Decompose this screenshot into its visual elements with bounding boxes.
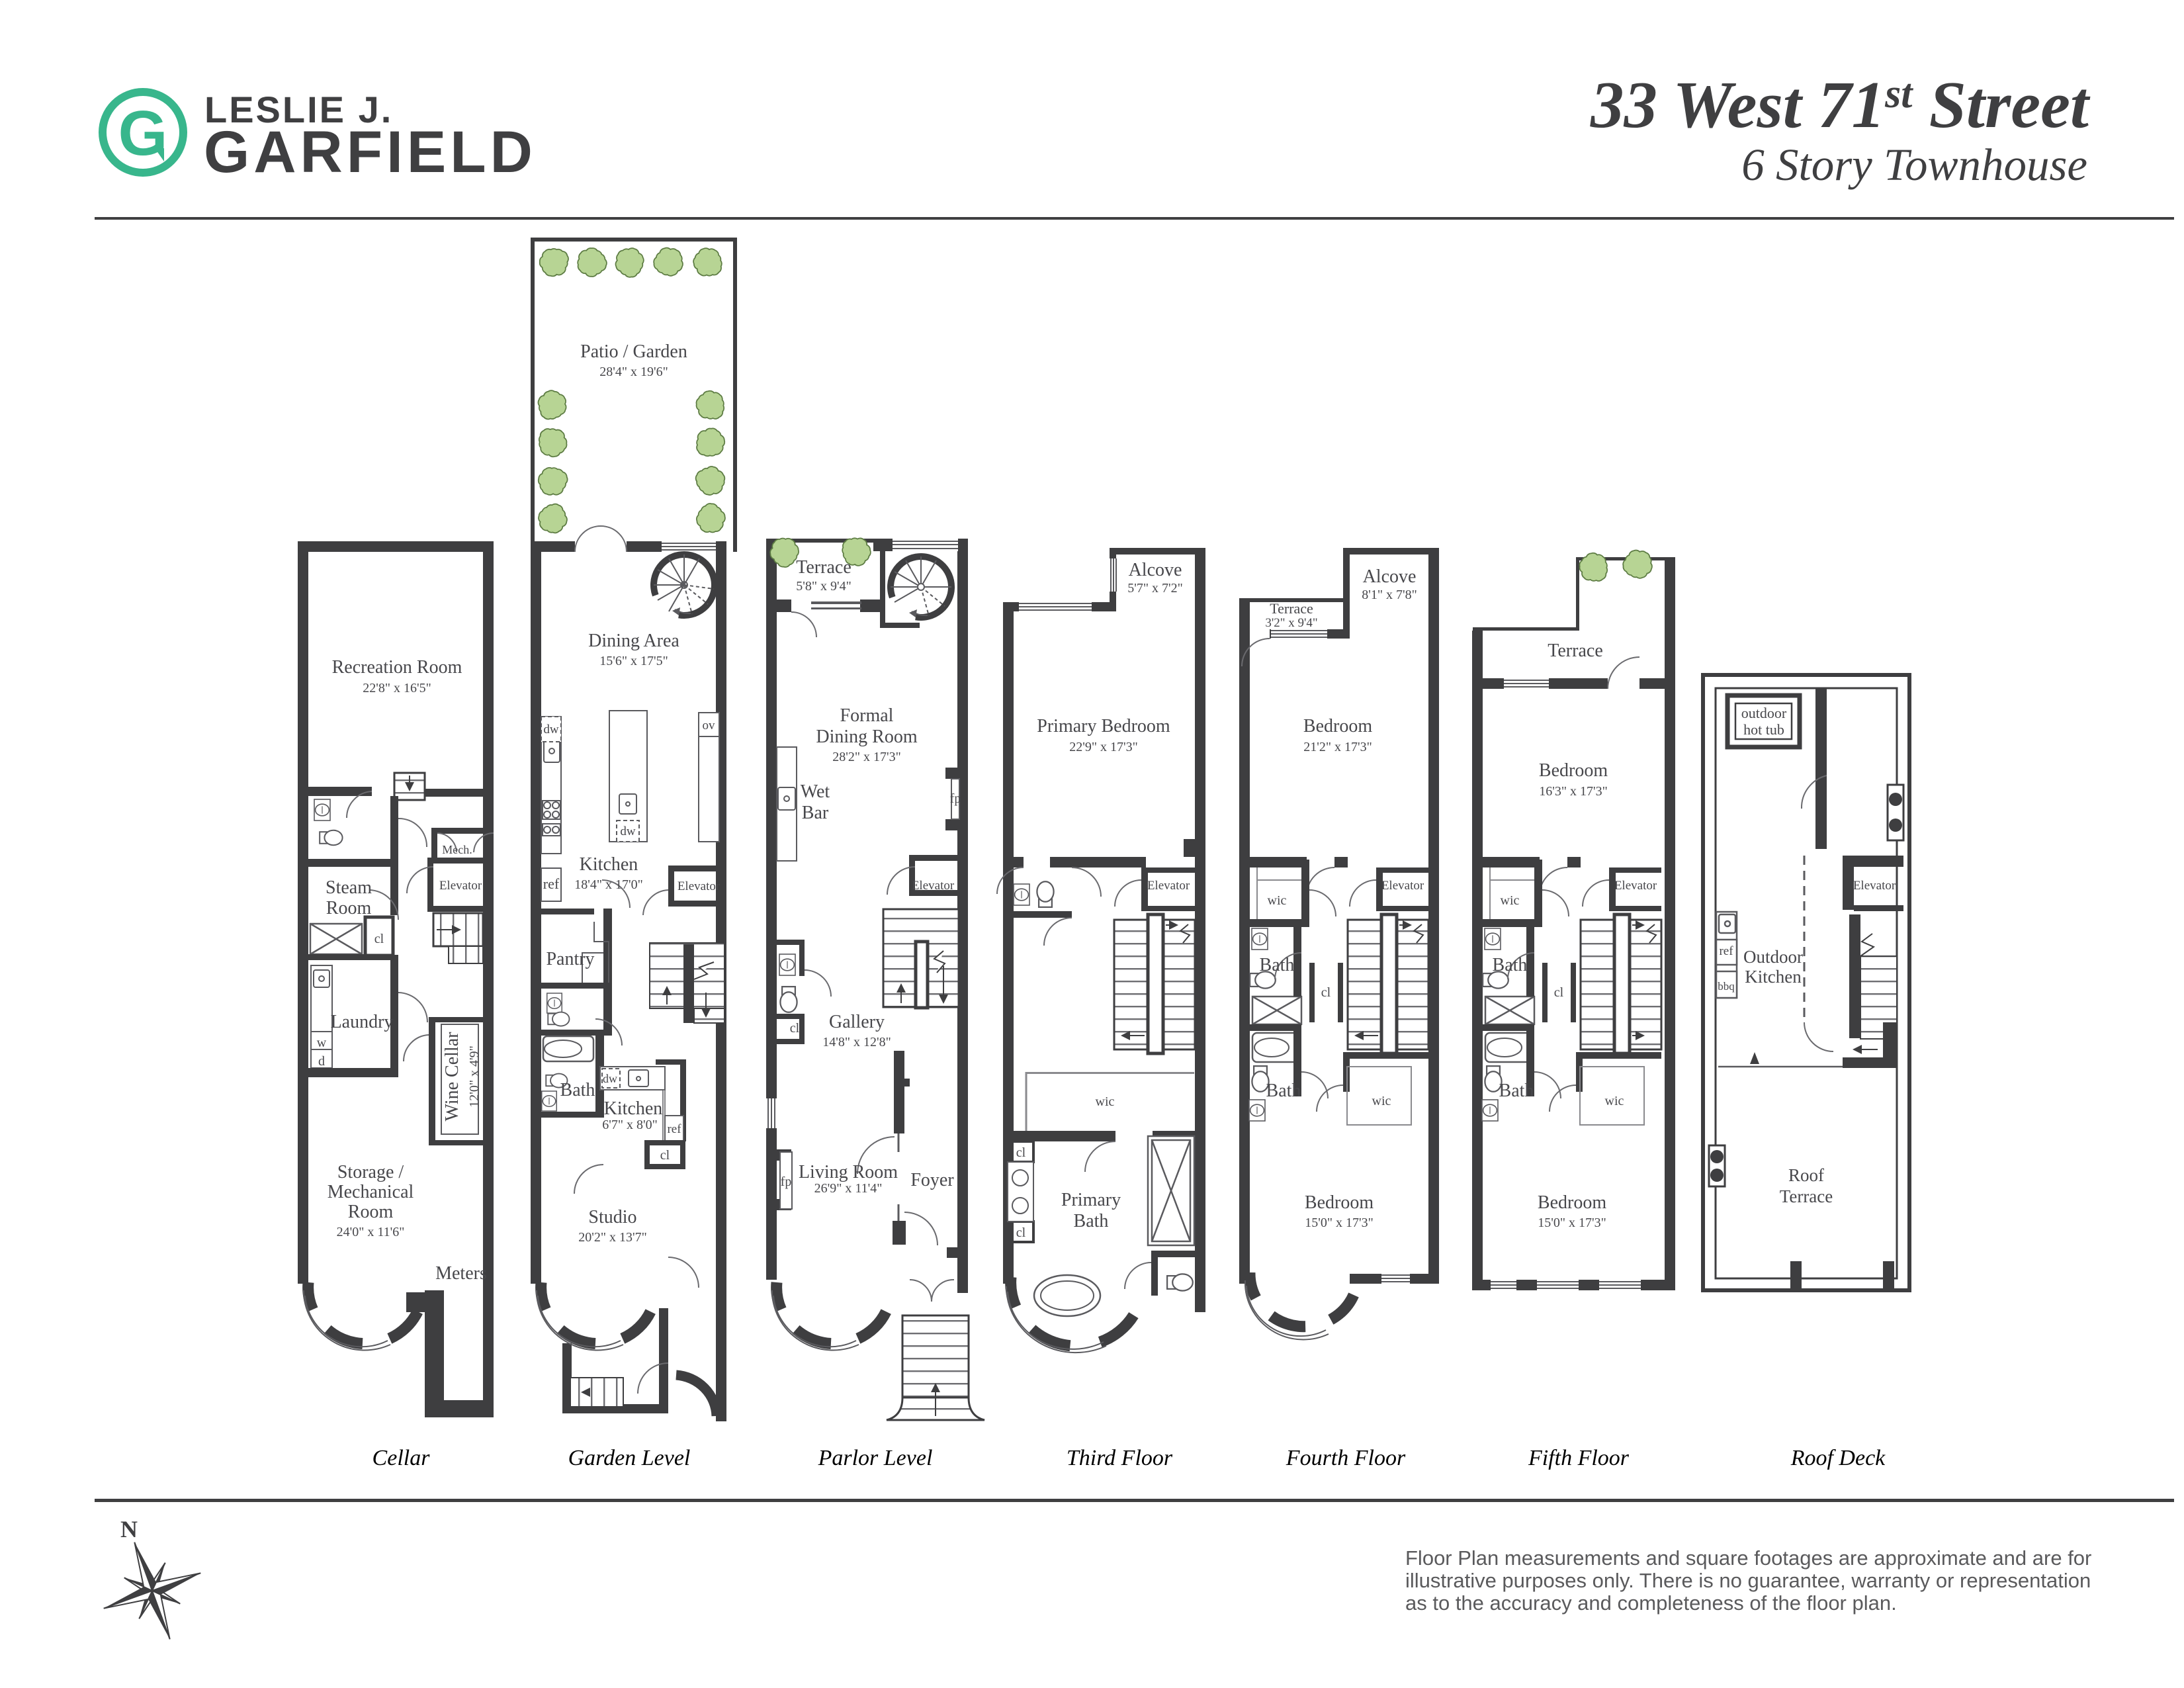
svg-text:ref: ref bbox=[1719, 944, 1733, 958]
svg-text:24'0" x 11'6": 24'0" x 11'6" bbox=[337, 1225, 405, 1239]
svg-text:Room: Room bbox=[326, 898, 372, 918]
svg-text:GARFIELD: GARFIELD bbox=[204, 118, 537, 185]
svg-text:Kitchen: Kitchen bbox=[604, 1098, 663, 1119]
svg-text:Meters: Meters bbox=[435, 1263, 487, 1284]
svg-text:12'0" x 4'9": 12'0" x 4'9" bbox=[467, 1045, 482, 1108]
svg-text:cl: cl bbox=[790, 1021, 800, 1036]
svg-text:3'2" x 9'4": 3'2" x 9'4" bbox=[1265, 616, 1317, 630]
svg-text:16'3" x 17'3": 16'3" x 17'3" bbox=[1539, 784, 1608, 799]
svg-text:Elevator: Elevator bbox=[1381, 879, 1424, 893]
svg-text:ref: ref bbox=[667, 1122, 681, 1136]
svg-text:22'8" x 16'5": 22'8" x 16'5" bbox=[363, 681, 431, 695]
svg-text:Bath: Bath bbox=[1493, 955, 1528, 975]
svg-text:Cellar: Cellar bbox=[372, 1446, 431, 1470]
svg-text:illustrative purposes only. Th: illustrative purposes only. There is no … bbox=[1405, 1569, 2091, 1592]
svg-text:wic: wic bbox=[1096, 1094, 1115, 1109]
svg-text:5'8" x 9'4": 5'8" x 9'4" bbox=[796, 579, 852, 594]
svg-text:15'6" x 17'5": 15'6" x 17'5" bbox=[599, 654, 668, 668]
svg-text:22'9" x 17'3": 22'9" x 17'3" bbox=[1069, 740, 1138, 754]
svg-text:as to the accuracy and complet: as to the accuracy and completeness of t… bbox=[1405, 1591, 1897, 1615]
svg-text:Terrace: Terrace bbox=[796, 557, 852, 578]
svg-text:ref: ref bbox=[543, 875, 560, 892]
svg-text:dw: dw bbox=[603, 1072, 617, 1085]
svg-text:cl: cl bbox=[1016, 1145, 1026, 1160]
svg-text:Terrace: Terrace bbox=[1780, 1186, 1833, 1206]
svg-text:Primary: Primary bbox=[1061, 1190, 1121, 1210]
svg-text:fp: fp bbox=[781, 1175, 792, 1189]
svg-text:N: N bbox=[120, 1516, 138, 1542]
svg-text:G: G bbox=[118, 98, 168, 169]
svg-text:Parlor Level: Parlor Level bbox=[818, 1446, 933, 1470]
svg-text:Elevator: Elevator bbox=[1147, 879, 1190, 893]
svg-text:Mechanical: Mechanical bbox=[328, 1182, 414, 1202]
svg-text:Recreation Room: Recreation Room bbox=[332, 657, 462, 678]
svg-text:26'9" x 11'4": 26'9" x 11'4" bbox=[814, 1181, 883, 1196]
svg-text:15'0" x 17'3": 15'0" x 17'3" bbox=[1305, 1216, 1374, 1230]
svg-text:Bath: Bath bbox=[1074, 1211, 1109, 1231]
svg-text:hot tub: hot tub bbox=[1743, 721, 1784, 738]
svg-text:dw: dw bbox=[543, 723, 559, 736]
svg-text:21'2" x 17'3": 21'2" x 17'3" bbox=[1303, 740, 1372, 754]
svg-text:Wet: Wet bbox=[801, 781, 830, 802]
svg-text:dw: dw bbox=[620, 824, 636, 838]
svg-text:Storage /: Storage / bbox=[337, 1162, 404, 1182]
svg-text:fp: fp bbox=[950, 791, 961, 806]
svg-text:cl: cl bbox=[1554, 985, 1564, 1000]
svg-text:Alcove: Alcove bbox=[1363, 566, 1417, 587]
svg-text:28'4" x 19'6": 28'4" x 19'6" bbox=[599, 365, 668, 379]
svg-text:Studio: Studio bbox=[588, 1207, 636, 1227]
svg-text:Bedroom: Bedroom bbox=[1538, 1192, 1606, 1213]
svg-text:w: w bbox=[317, 1036, 327, 1050]
svg-text:Kitchen: Kitchen bbox=[1745, 967, 1802, 987]
svg-text:Garden Level: Garden Level bbox=[568, 1446, 691, 1470]
svg-text:Laundry: Laundry bbox=[331, 1012, 394, 1032]
svg-text:wic: wic bbox=[1268, 893, 1287, 908]
svg-text:Terrace: Terrace bbox=[1548, 641, 1603, 661]
svg-text:Bath: Bath bbox=[1266, 1081, 1301, 1101]
svg-text:Elevator: Elevator bbox=[1614, 879, 1657, 893]
svg-text:8'1" x 7'8": 8'1" x 7'8" bbox=[1362, 588, 1417, 602]
svg-text:outdoor: outdoor bbox=[1741, 705, 1787, 721]
svg-text:Foyer: Foyer bbox=[910, 1170, 954, 1190]
svg-text:14'8" x 12'8": 14'8" x 12'8" bbox=[822, 1035, 891, 1049]
svg-text:Dining Area: Dining Area bbox=[588, 631, 679, 651]
svg-text:Third Floor: Third Floor bbox=[1067, 1446, 1173, 1470]
svg-text:Steam: Steam bbox=[326, 877, 372, 898]
svg-text:Mech.: Mech. bbox=[442, 843, 472, 856]
svg-text:Room: Room bbox=[348, 1202, 394, 1222]
svg-text:6 Story Townhouse: 6 Story Townhouse bbox=[1741, 140, 2087, 190]
svg-text:Fourth Floor: Fourth Floor bbox=[1286, 1446, 1406, 1470]
svg-text:cl: cl bbox=[1016, 1225, 1026, 1240]
svg-text:Bar: Bar bbox=[802, 803, 829, 823]
svg-text:Wine Cellar: Wine Cellar bbox=[442, 1032, 462, 1122]
svg-text:Bedroom: Bedroom bbox=[1539, 760, 1608, 781]
svg-text:20'2" x 13'7": 20'2" x 13'7" bbox=[578, 1230, 647, 1245]
svg-text:Fifth Floor: Fifth Floor bbox=[1528, 1446, 1630, 1470]
svg-text:Living Room: Living Room bbox=[799, 1162, 898, 1182]
svg-text:6'7" x 8'0": 6'7" x 8'0" bbox=[602, 1118, 658, 1132]
svg-text:Patio / Garden: Patio / Garden bbox=[580, 341, 687, 362]
svg-text:ov: ov bbox=[703, 719, 716, 733]
svg-text:Bedroom: Bedroom bbox=[1303, 716, 1372, 736]
svg-text:33 West 71st Street: 33 West 71st Street bbox=[1590, 67, 2091, 142]
svg-text:Pantry: Pantry bbox=[546, 949, 594, 969]
svg-text:Outdoor: Outdoor bbox=[1743, 947, 1803, 967]
svg-text:Kitchen: Kitchen bbox=[580, 854, 638, 875]
svg-text:Elevator: Elevator bbox=[912, 879, 955, 893]
svg-text:Dining Room: Dining Room bbox=[816, 727, 917, 747]
svg-text:Roof Deck: Roof Deck bbox=[1790, 1446, 1886, 1470]
svg-text:Floor Plan measurements and sq: Floor Plan measurements and square foota… bbox=[1405, 1546, 2091, 1570]
svg-text:wic: wic bbox=[1605, 1094, 1624, 1108]
svg-text:Bedroom: Bedroom bbox=[1305, 1192, 1374, 1213]
svg-text:bbq: bbq bbox=[1718, 980, 1735, 993]
svg-text:Bath: Bath bbox=[1260, 955, 1295, 975]
svg-text:wic: wic bbox=[1372, 1094, 1391, 1108]
svg-text:Alcove: Alcove bbox=[1129, 560, 1182, 580]
svg-text:d: d bbox=[318, 1054, 325, 1069]
svg-text:Bath: Bath bbox=[560, 1080, 595, 1100]
svg-text:15'0" x 17'3": 15'0" x 17'3" bbox=[1538, 1216, 1606, 1230]
svg-text:Primary Bedroom: Primary Bedroom bbox=[1037, 716, 1170, 736]
svg-text:Bath: Bath bbox=[1499, 1081, 1534, 1101]
svg-text:Elevator: Elevator bbox=[677, 879, 721, 893]
svg-text:Elevator: Elevator bbox=[439, 879, 482, 893]
svg-text:Terrace: Terrace bbox=[1270, 600, 1313, 617]
svg-text:18'4" x 17'0": 18'4" x 17'0" bbox=[574, 877, 643, 892]
svg-text:Elevator: Elevator bbox=[1853, 879, 1896, 893]
svg-text:Roof: Roof bbox=[1788, 1165, 1824, 1185]
svg-text:Gallery: Gallery bbox=[829, 1012, 885, 1032]
svg-text:cl: cl bbox=[660, 1148, 670, 1163]
svg-text:cl: cl bbox=[1321, 985, 1331, 1000]
svg-text:Formal: Formal bbox=[840, 705, 894, 726]
svg-text:5'7" x 7'2": 5'7" x 7'2" bbox=[1127, 581, 1183, 596]
svg-text:28'2" x 17'3": 28'2" x 17'3" bbox=[832, 750, 901, 764]
svg-text:cl: cl bbox=[374, 932, 384, 946]
svg-text:wic: wic bbox=[1501, 893, 1520, 908]
